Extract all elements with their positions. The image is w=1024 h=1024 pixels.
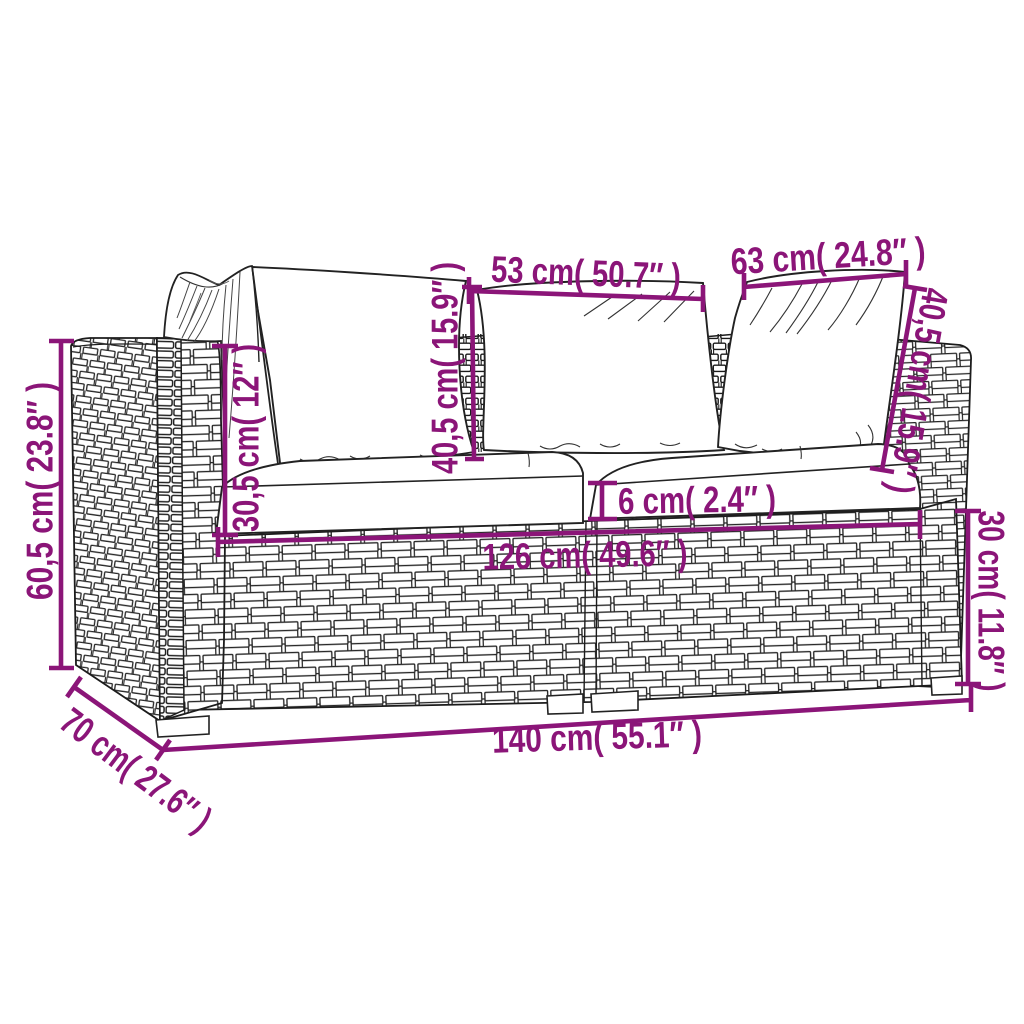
svg-text:40,5 cm( 15.9″ ): 40,5 cm( 15.9″ ) xyxy=(425,262,466,474)
svg-text:126 cm( 49.6″ ): 126 cm( 49.6″ ) xyxy=(482,532,688,577)
svg-text:140 cm( 55.1″ ): 140 cm( 55.1″ ) xyxy=(491,713,702,761)
svg-text:6 cm( 2.4″ ): 6 cm( 2.4″ ) xyxy=(618,478,777,522)
svg-text:60,5 cm( 23.8″ ): 60,5 cm( 23.8″ ) xyxy=(20,382,61,600)
svg-text:30,5 cm( 12″ ): 30,5 cm( 12″ ) xyxy=(226,344,267,532)
svg-text:30 cm( 11.8″ ): 30 cm( 11.8″ ) xyxy=(971,511,1012,692)
svg-text:53 cm( 50.7″ ): 53 cm( 50.7″ ) xyxy=(490,249,681,298)
